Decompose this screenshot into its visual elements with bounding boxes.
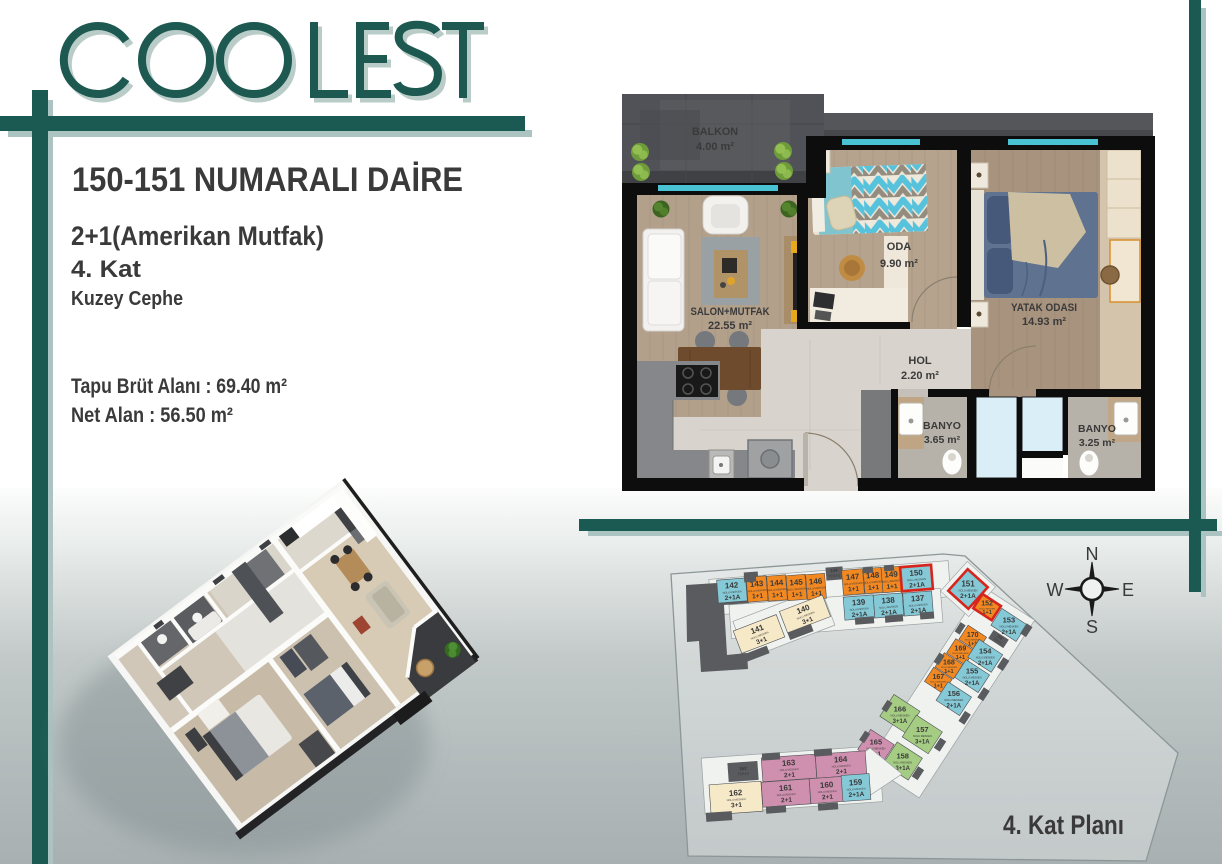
svg-text:2+1A: 2+1A [848, 791, 864, 799]
svg-text:137: 137 [911, 593, 926, 603]
svg-text:3+1A: 3+1A [893, 719, 908, 725]
svg-text:170: 170 [967, 632, 979, 639]
svg-text:14.93 m²: 14.93 m² [1022, 316, 1066, 328]
svg-text:144: 144 [830, 568, 838, 574]
svg-text:2+1: 2+1 [781, 797, 793, 805]
svg-text:165: 165 [870, 738, 883, 747]
svg-text:3.65 m²: 3.65 m² [924, 434, 961, 446]
svg-text:W: W [1047, 580, 1064, 600]
svg-text:1+1: 1+1 [752, 593, 764, 601]
svg-text:160: 160 [820, 780, 834, 790]
svg-text:167: 167 [932, 674, 944, 681]
svg-text:159: 159 [849, 778, 863, 788]
svg-text:1+1: 1+1 [791, 591, 803, 599]
svg-text:Tapu Brüt Alanı : 69.40 m²: Tapu Brüt Alanı : 69.40 m² [71, 375, 287, 398]
svg-text:S: S [1086, 617, 1098, 637]
svg-text:NOLU MESKEN: NOLU MESKEN [976, 655, 995, 659]
svg-text:1+1: 1+1 [982, 610, 991, 616]
svg-text:NOLU MESKEN: NOLU MESKEN [959, 589, 978, 593]
svg-text:3.25 m²: 3.25 m² [1079, 437, 1116, 449]
svg-text:1+1: 1+1 [886, 583, 898, 591]
svg-text:NOLU MESKEN: NOLU MESKEN [913, 734, 932, 738]
svg-text:155: 155 [966, 667, 979, 676]
svg-text:145: 145 [789, 577, 804, 587]
svg-text:2+1A: 2+1A [724, 594, 741, 602]
svg-text:NOLU MESKEN: NOLU MESKEN [944, 698, 963, 702]
svg-text:138: 138 [881, 595, 896, 605]
svg-text:2+1: 2+1 [822, 794, 834, 802]
svg-text:154: 154 [979, 646, 992, 655]
svg-text:1+1: 1+1 [868, 584, 880, 592]
svg-text:BANYO: BANYO [923, 420, 961, 432]
svg-text:4. Kat Planı: 4. Kat Planı [1003, 810, 1124, 840]
svg-text:2+1A: 2+1A [978, 661, 993, 667]
svg-text:NOLU MESKEN: NOLU MESKEN [963, 676, 982, 680]
svg-text:147: 147 [846, 572, 861, 582]
svg-text:22.55 m²: 22.55 m² [708, 320, 752, 332]
svg-text:144: 144 [770, 578, 785, 588]
svg-text:2+1A: 2+1A [960, 593, 976, 600]
svg-text:YATAK ODASI: YATAK ODASI [1011, 302, 1077, 314]
svg-text:3+1: 3+1 [731, 802, 743, 810]
svg-text:2+1A: 2+1A [909, 581, 926, 589]
svg-text:163: 163 [782, 758, 796, 768]
svg-text:BALKON: BALKON [692, 126, 738, 138]
svg-text:166: 166 [894, 704, 907, 713]
svg-text:169: 169 [955, 645, 967, 652]
svg-text:2+1A: 2+1A [1002, 630, 1017, 636]
svg-text:4. Kat: 4. Kat [71, 256, 141, 283]
svg-text:1+1: 1+1 [934, 683, 943, 689]
svg-text:2.20 m²: 2.20 m² [901, 370, 939, 382]
svg-text:2+1A: 2+1A [965, 681, 980, 687]
svg-text:1+1: 1+1 [772, 592, 784, 600]
svg-text:NOLU MESKEN: NOLU MESKEN [890, 713, 909, 717]
svg-text:HOL: HOL [908, 355, 932, 367]
svg-text:161: 161 [779, 783, 793, 793]
svg-text:156: 156 [948, 689, 961, 698]
svg-text:158: 158 [896, 752, 909, 761]
svg-text:2+1(Amerikan Mutfak): 2+1(Amerikan Mutfak) [71, 221, 324, 251]
svg-text:4.00 m²: 4.00 m² [696, 141, 734, 153]
svg-text:150: 150 [909, 568, 924, 578]
svg-text:162: 162 [739, 766, 747, 772]
svg-text:ODA: ODA [887, 241, 912, 253]
svg-text:Kuzey Cephe: Kuzey Cephe [71, 288, 183, 310]
svg-text:N: N [1086, 544, 1099, 564]
svg-text:1+1: 1+1 [848, 586, 860, 594]
svg-text:1+1: 1+1 [956, 655, 965, 661]
svg-text:2+1: 2+1 [836, 768, 848, 776]
svg-text:2+1: 2+1 [784, 772, 796, 780]
svg-text:2+1A: 2+1A [947, 704, 962, 710]
svg-text:E: E [1122, 580, 1134, 600]
svg-text:168: 168 [943, 659, 955, 666]
svg-text:9.90 m²: 9.90 m² [880, 258, 918, 270]
svg-text:153: 153 [1003, 615, 1016, 624]
svg-text:152: 152 [981, 601, 993, 608]
svg-text:157: 157 [916, 725, 929, 734]
svg-text:164: 164 [834, 755, 848, 765]
svg-text:1+1: 1+1 [944, 669, 953, 675]
svg-text:SALON+MUTFAK: SALON+MUTFAK [691, 306, 770, 318]
svg-text:3+1A: 3+1A [915, 739, 930, 745]
svg-text:BANYO: BANYO [1078, 423, 1116, 435]
svg-text:162: 162 [729, 788, 743, 798]
svg-text:150-151 NUMARALI DAİRE: 150-151 NUMARALI DAİRE [72, 161, 463, 199]
svg-text:139: 139 [852, 597, 867, 607]
svg-text:NOLU MESKEN: NOLU MESKEN [999, 624, 1018, 628]
svg-text:142: 142 [725, 580, 740, 590]
svg-text:TERAS: TERAS [737, 772, 749, 777]
svg-text:146: 146 [809, 576, 824, 586]
svg-text:Net Alan : 56.50 m²: Net Alan : 56.50 m² [71, 404, 233, 427]
svg-text:151: 151 [961, 580, 975, 589]
svg-text:NOLU MESKEN: NOLU MESKEN [893, 761, 912, 765]
